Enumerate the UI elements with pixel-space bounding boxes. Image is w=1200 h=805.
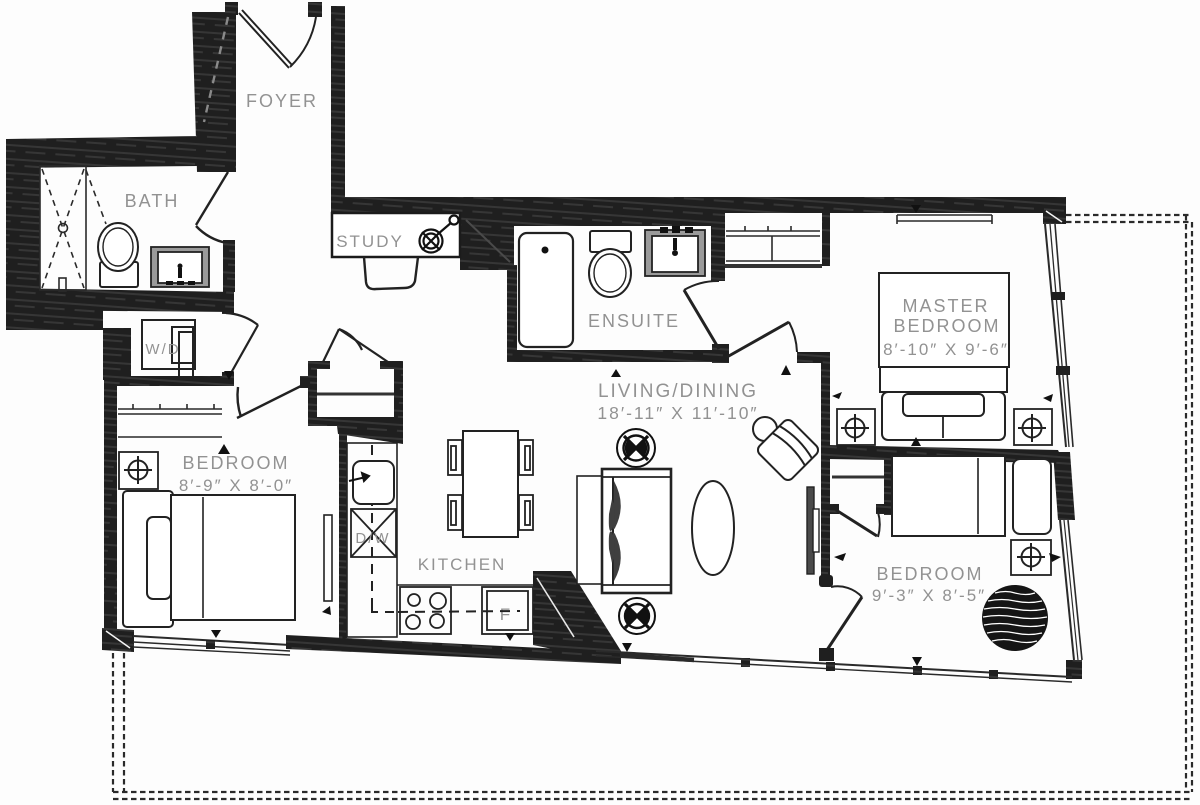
svg-text:F: F bbox=[500, 605, 512, 624]
svg-text:BEDROOM: BEDROOM bbox=[182, 453, 289, 473]
svg-text:STUDY: STUDY bbox=[336, 232, 404, 251]
svg-text:D/W: D/W bbox=[355, 530, 390, 547]
svg-text:KITCHEN: KITCHEN bbox=[418, 555, 507, 574]
svg-text:MASTER: MASTER bbox=[902, 296, 989, 316]
svg-text:W/D: W/D bbox=[145, 341, 180, 358]
svg-text:LIVING/DINING: LIVING/DINING bbox=[598, 381, 758, 402]
svg-text:BEDROOM: BEDROOM bbox=[893, 316, 1000, 336]
svg-text:ENSUITE: ENSUITE bbox=[588, 311, 680, 331]
svg-text:BEDROOM: BEDROOM bbox=[876, 564, 983, 584]
svg-text:FOYER: FOYER bbox=[246, 91, 318, 111]
svg-text:BATH: BATH bbox=[125, 191, 180, 211]
svg-text:9′-3″ X 8′-5″: 9′-3″ X 8′-5″ bbox=[872, 586, 986, 605]
svg-text:18′-11″ X 11′-10″: 18′-11″ X 11′-10″ bbox=[597, 403, 758, 423]
svg-text:8′-9″ X 8′-0″: 8′-9″ X 8′-0″ bbox=[179, 476, 293, 495]
svg-text:8′-10″ X 9′-6″: 8′-10″ X 9′-6″ bbox=[883, 340, 1009, 359]
